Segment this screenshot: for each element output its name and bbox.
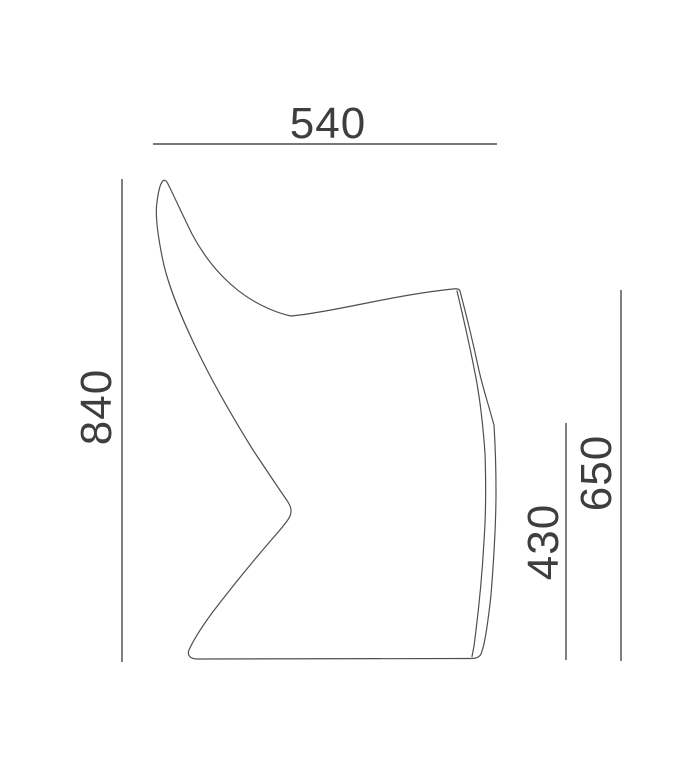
- dimension-label-width: 540: [290, 102, 366, 146]
- chair-outline: [156, 180, 496, 659]
- technical-drawing-canvas: 540 840 650 430: [0, 0, 700, 781]
- dimension-label-seat-height: 430: [522, 504, 566, 580]
- chair-back-inner-edge: [457, 291, 486, 657]
- dimension-label-height: 840: [75, 369, 119, 445]
- dimension-label-back-height: 650: [575, 435, 619, 511]
